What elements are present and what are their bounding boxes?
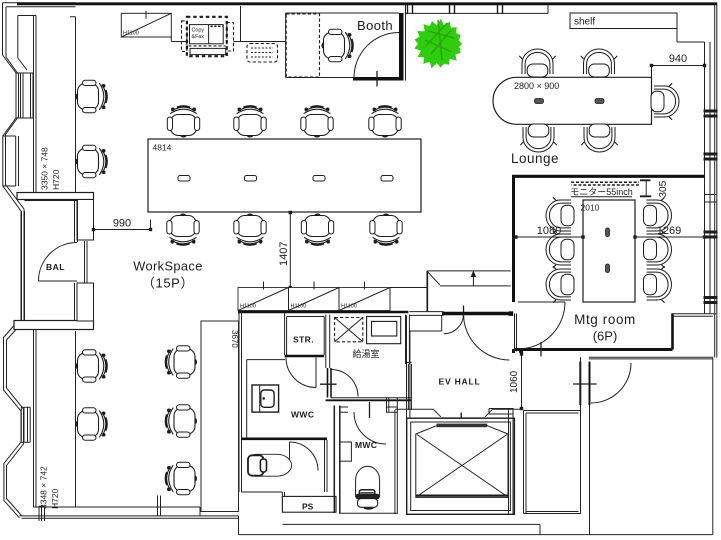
- svg-text:3670: 3670: [230, 330, 239, 348]
- svg-text:WWC: WWC: [291, 410, 314, 420]
- svg-text:3348 × 742: 3348 × 742: [39, 466, 49, 509]
- svg-text:990: 990: [113, 218, 131, 230]
- svg-text:3350 × 748: 3350 × 748: [40, 147, 50, 190]
- svg-text:STR.: STR.: [293, 335, 314, 345]
- svg-text:H1100: H1100: [291, 304, 307, 310]
- svg-text:H1100: H1100: [240, 304, 256, 310]
- svg-text:Booth: Booth: [357, 18, 393, 33]
- svg-text:1080: 1080: [537, 225, 561, 237]
- svg-text:給湯室: 給湯室: [352, 348, 379, 359]
- svg-text:shelf: shelf: [574, 17, 595, 28]
- svg-text:H720: H720: [50, 488, 60, 509]
- svg-text:1407: 1407: [278, 242, 290, 266]
- svg-text:MWC: MWC: [355, 440, 377, 450]
- svg-text:305: 305: [658, 180, 669, 197]
- svg-text:2800 × 900: 2800 × 900: [514, 81, 559, 91]
- svg-text:モニター55inch: モニター55inch: [570, 187, 633, 197]
- svg-text:(6P): (6P): [593, 329, 618, 344]
- svg-text:Mtg room: Mtg room: [574, 312, 636, 327]
- svg-text:EV HALL: EV HALL: [439, 377, 481, 387]
- svg-text:&Fax: &Fax: [192, 34, 205, 40]
- svg-text:2010: 2010: [581, 203, 600, 213]
- svg-text:H1100: H1100: [123, 31, 139, 37]
- svg-text:PS: PS: [302, 502, 314, 512]
- svg-text:Lounge: Lounge: [511, 151, 559, 166]
- svg-text:H1100: H1100: [341, 304, 357, 310]
- svg-text:1269: 1269: [657, 225, 681, 237]
- svg-text:BAL: BAL: [46, 262, 65, 272]
- svg-text:WorkSpace: WorkSpace: [133, 259, 203, 274]
- svg-text:940: 940: [669, 53, 687, 65]
- svg-text:（15P）: （15P）: [142, 276, 194, 291]
- svg-text:H720: H720: [51, 169, 61, 190]
- svg-text:Copy: Copy: [192, 28, 205, 34]
- svg-text:4814: 4814: [153, 143, 172, 153]
- svg-text:1060: 1060: [509, 370, 520, 393]
